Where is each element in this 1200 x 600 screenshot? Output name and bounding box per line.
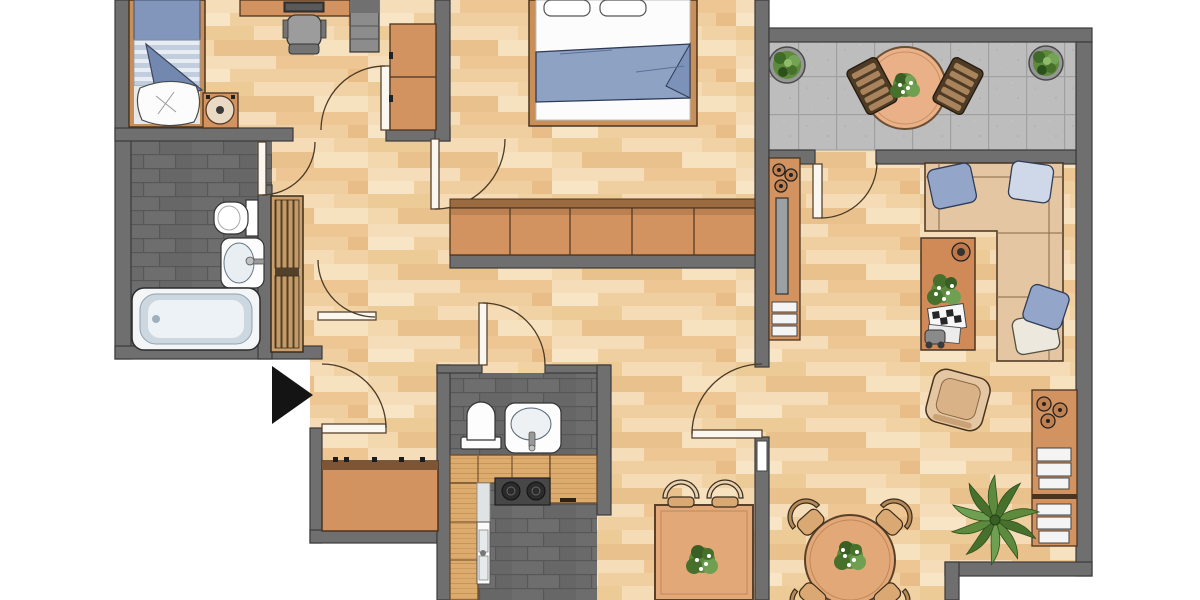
exterior-right	[1092, 0, 1200, 600]
wc-toilet-bowl	[467, 402, 495, 440]
small-bedroom-door-leaf	[381, 66, 390, 130]
corridor	[271, 196, 303, 352]
hifi-dot	[1058, 408, 1062, 412]
chair-seat	[712, 497, 738, 507]
books	[772, 326, 797, 336]
wall-wc-north-a	[437, 365, 482, 373]
wall-wc-east	[597, 365, 611, 515]
kitchen-counter-deep	[550, 455, 597, 503]
check	[940, 317, 948, 325]
bed-pillow-right	[600, 0, 646, 16]
foliage	[778, 67, 788, 77]
table-bowl-center	[957, 248, 965, 256]
palm-center	[990, 515, 1000, 525]
flower	[946, 291, 950, 295]
flower	[704, 562, 708, 566]
wall-living-west-upper	[755, 0, 769, 367]
bathtub-basin	[148, 300, 244, 338]
books	[772, 302, 797, 312]
nightstand-kn1	[206, 95, 210, 99]
nightstand-kn2	[231, 95, 235, 99]
foliage	[834, 554, 850, 570]
exterior-above-balcony	[769, 0, 1092, 28]
single-bed-blanket-top	[134, 0, 200, 40]
bath-faucet-knob	[246, 257, 254, 265]
toilet-bowl	[214, 202, 248, 234]
hifi-dot	[1042, 402, 1046, 406]
foliage	[686, 558, 702, 574]
toy-wheel	[938, 342, 945, 349]
wardrobe-handle	[389, 52, 393, 59]
plant-flower	[898, 83, 902, 87]
foliage	[1037, 65, 1047, 75]
shelf-books	[1037, 463, 1071, 476]
shelf-books	[1037, 504, 1071, 515]
coat-hook	[333, 457, 338, 462]
flower	[843, 554, 847, 558]
kitchen-drainer	[477, 483, 490, 522]
wardrobe-rail	[450, 199, 755, 208]
floor-plan	[0, 0, 1200, 600]
shelf-books	[1039, 478, 1069, 489]
balcony-door-leaf	[813, 164, 822, 218]
shelf-books	[1037, 448, 1071, 461]
wall-step-south	[945, 562, 959, 600]
pillow	[926, 162, 977, 210]
wardrobe-row-top	[451, 209, 754, 215]
wc-faucet-knob	[529, 445, 535, 451]
office-chair-seat	[287, 15, 321, 47]
coat-hook	[344, 457, 349, 462]
exterior-entrance-notch	[0, 359, 310, 600]
wc	[461, 402, 561, 453]
wall-bed-bath-west	[115, 128, 293, 141]
flower	[847, 563, 851, 567]
wardrobe-handle	[389, 95, 393, 102]
check	[946, 309, 954, 317]
shelf-books	[1037, 517, 1071, 529]
pillow	[1008, 160, 1055, 203]
nightstand-dial-hub	[216, 106, 224, 114]
coat-closet-rail	[322, 461, 438, 470]
foliage	[702, 558, 718, 574]
shelf-divider	[1032, 494, 1077, 499]
coat-hook	[372, 457, 377, 462]
main-bedroom-door-leaf	[431, 139, 439, 209]
foliage	[850, 544, 862, 556]
stove-burner	[527, 482, 545, 500]
sofa-pillow	[926, 162, 977, 210]
flower	[934, 292, 938, 296]
office-chair-arm	[283, 20, 288, 38]
floor-plan-canvas	[0, 0, 1200, 600]
counter-handle	[560, 498, 576, 502]
foliage	[784, 59, 792, 67]
plant-flower	[906, 86, 910, 90]
wc-door-leaf	[479, 303, 487, 365]
single-bed-pillow	[137, 81, 199, 125]
wall-wc-west	[437, 365, 450, 600]
entrance-door-leaf	[322, 424, 386, 433]
plant-flower	[909, 81, 913, 85]
sofa-pillow	[1008, 160, 1055, 203]
plant-leaf	[906, 83, 920, 97]
exterior-bottom-right-step	[959, 576, 1092, 600]
coat-hook	[420, 457, 425, 462]
slatted-shelf-upper	[275, 200, 299, 268]
kitchen-sink-bowl	[479, 556, 488, 580]
wall-bedroom-divider	[435, 0, 450, 141]
check	[932, 311, 940, 319]
kitchen-sink-bowl	[479, 530, 488, 552]
chair-seat	[668, 497, 694, 507]
foliage	[702, 548, 714, 560]
bed-pillow-left	[544, 0, 590, 16]
coat-hook	[399, 457, 404, 462]
toy-wheel	[926, 342, 933, 349]
plant-flower	[901, 90, 905, 94]
check	[954, 315, 962, 323]
speaker-dot	[789, 173, 793, 177]
wall-balcony-north	[769, 28, 1092, 42]
tv	[776, 198, 788, 294]
kitchen-faucet	[480, 550, 486, 556]
coat-closet	[322, 461, 438, 531]
stove-burner	[502, 482, 520, 500]
flower	[855, 550, 859, 554]
foliage	[933, 274, 947, 288]
shelf-books	[1039, 531, 1069, 543]
slatted-shelf-gap	[275, 268, 299, 276]
flower	[852, 558, 856, 562]
flower	[942, 297, 946, 301]
speaker-dot	[779, 184, 783, 188]
office-chair-arm	[321, 20, 326, 38]
kitchen-counter-left	[450, 483, 478, 600]
flower	[950, 284, 954, 288]
hifi-dot	[1046, 419, 1050, 423]
living-door-leaf	[692, 430, 762, 438]
flower	[937, 286, 941, 290]
office-chair-back	[289, 44, 319, 54]
exterior-below-hall	[310, 543, 438, 600]
slatted-shelf-lower	[275, 276, 299, 348]
wall-mainbed-south	[450, 255, 755, 268]
bathtub-drain	[152, 315, 160, 323]
foliage	[927, 289, 943, 305]
foliage	[850, 554, 866, 570]
bed-blanket	[536, 44, 690, 102]
potted-plant-left	[769, 47, 805, 83]
wall-balcony-living-b	[876, 150, 1076, 164]
flower	[707, 554, 711, 558]
wall-entry-west	[310, 428, 322, 543]
speaker-dot	[777, 168, 781, 172]
bathroom-door-leaf	[258, 142, 266, 195]
potted-plant-right	[1029, 46, 1063, 80]
flower	[841, 548, 845, 552]
flower	[695, 558, 699, 562]
desk-drawer-top	[350, 0, 379, 13]
keyboard-keys	[286, 4, 322, 10]
wall-living-south	[945, 562, 1092, 576]
wall-hall-south	[310, 530, 437, 543]
window-pane-hall	[757, 441, 767, 471]
wardrobe-row	[450, 208, 755, 255]
flower	[699, 567, 703, 571]
wall-outer-right	[1076, 42, 1092, 576]
foliage	[1043, 57, 1051, 65]
books	[772, 314, 797, 324]
